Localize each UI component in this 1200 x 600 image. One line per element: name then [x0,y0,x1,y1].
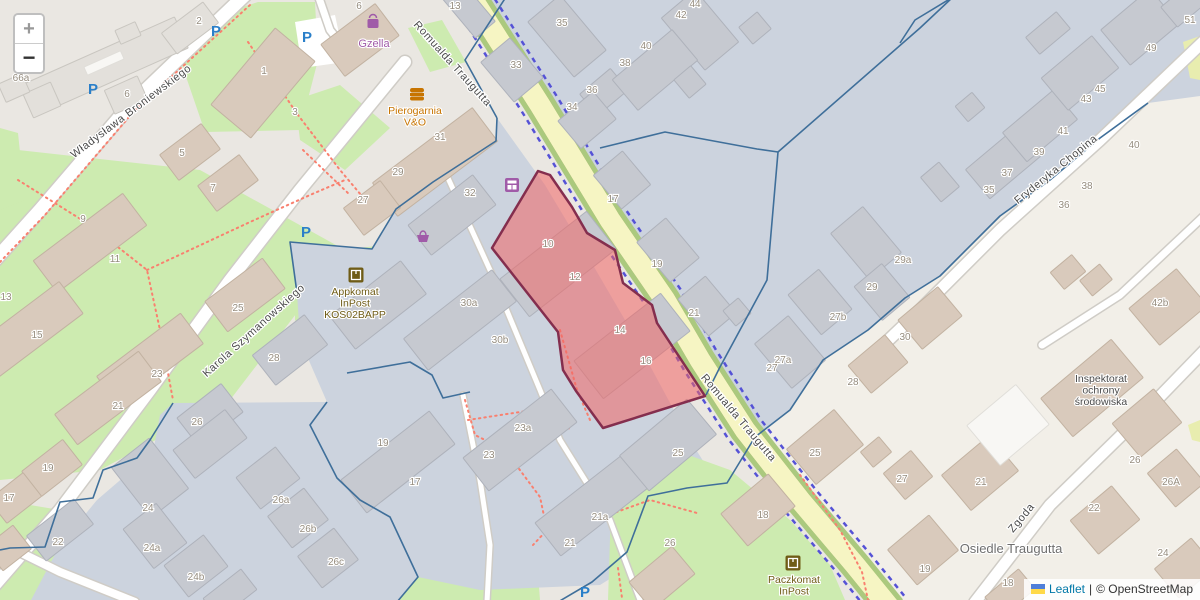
map-tiles: PPPPP266a6571391113152523212628613312927… [0,0,1200,600]
house-number: 40 [640,41,652,52]
fast-food-icon [410,88,424,101]
house-number: 11 [110,254,121,265]
house-number: 30 [899,332,911,343]
house-number: 24a [144,543,161,554]
house-number: 19 [651,259,663,270]
house-number: 26b [300,524,317,535]
house-number: 42b [1152,298,1169,309]
house-number: 17 [607,194,619,205]
house-number: 31 [434,132,446,143]
house-number: 21a [592,512,609,523]
parking-icon: P [301,224,311,241]
house-number: 2 [196,16,202,27]
house-number: 23 [483,450,495,461]
poi-label: Gzella [358,38,390,50]
house-number: 27 [766,363,778,374]
house-number: 19 [377,438,389,449]
ukraine-flag-icon [1031,584,1045,594]
house-number: 18 [1002,578,1014,589]
house-number: 36 [1058,200,1070,211]
house-number: 13 [0,292,12,303]
house-number: 6 [124,89,130,100]
house-number: 10 [542,239,554,250]
house-number: 38 [1081,181,1093,192]
house-number: 15 [31,330,43,341]
house-number: 51 [1184,15,1196,26]
house-number: 42 [675,10,687,21]
house-number: 5 [179,148,185,159]
house-number: 14 [614,325,626,336]
house-number: 21 [688,308,700,319]
parking-icon: P [302,29,312,46]
house-number: 19 [919,564,931,575]
attribution-bar: Leaflet|© OpenStreetMap [1024,579,1200,600]
house-number: 24 [1157,548,1169,559]
house-number: 21 [564,538,576,549]
house-number: 22 [52,537,64,548]
house-number: 29 [866,282,878,293]
house-number: 17 [409,477,421,488]
house-number: 38 [619,58,631,69]
house-number: 34 [566,102,578,113]
parking-icon: P [580,584,590,600]
house-number: 66a [13,73,30,84]
house-number: 1 [261,66,267,77]
house-number: 27 [896,474,908,485]
house-number: 26 [191,417,203,428]
house-number: 23a [515,423,532,434]
house-number: 26a [273,495,290,506]
house-number: 37 [1001,168,1013,179]
house-number: 45 [1094,84,1106,95]
house-number: 25 [672,448,684,459]
parking-icon: P [211,23,221,40]
house-number: 18 [757,510,769,521]
house-number: 9 [80,214,86,225]
house-number: 28 [268,353,280,364]
convenience-store-icon [505,178,519,192]
house-number: 24b [188,572,205,583]
house-number: 13 [449,1,461,12]
house-number: 6 [356,1,362,12]
house-number: 26 [1129,455,1141,466]
house-number: 7 [210,183,216,194]
house-number: 25 [809,448,821,459]
house-number: 35 [556,18,568,29]
house-number: 32 [464,188,476,199]
house-number: 44 [689,0,701,10]
house-number: 27 [357,195,369,206]
zoom-out-button[interactable]: − [15,44,43,72]
house-number: 26 [664,538,676,549]
house-number: 36 [586,85,598,96]
osm-link[interactable]: © OpenStreetMap [1096,582,1193,596]
map-canvas[interactable]: PPPPP266a6571391113152523212628613312927… [0,0,1200,600]
parcel-locker-icon [786,556,801,571]
house-number: 29 [392,167,404,178]
house-number: 39 [1033,147,1045,158]
house-number: 28 [847,377,859,388]
house-number: 12 [569,272,581,283]
house-number: 22 [1088,503,1100,514]
leaflet-link[interactable]: Leaflet [1049,582,1085,596]
poi-label: Inspektoratochronyśrodowiska [1075,373,1128,408]
parking-icon: P [88,81,98,98]
attribution-separator: | [1089,582,1092,596]
house-number: 41 [1057,126,1069,137]
house-number: 30b [492,335,509,346]
house-number: 26A [1162,477,1180,488]
house-number: 35 [983,185,995,196]
house-number: 33 [510,60,522,71]
house-number: 19 [42,463,54,474]
house-number: 49 [1145,43,1157,54]
house-number: 40 [1128,140,1140,151]
house-number: 3 [292,107,298,118]
house-number: 21 [975,477,987,488]
zoom-in-button[interactable]: + [15,15,43,44]
house-number: 27b [830,312,847,323]
house-number: 26c [328,557,344,568]
house-number: 23 [151,369,163,380]
poi-label: Osiedle Traugutta [960,541,1063,556]
house-number: 16 [640,356,652,367]
house-number: 24 [142,503,154,514]
house-number: 21 [112,401,124,412]
house-number: 29a [895,255,912,266]
house-number: 25 [232,303,244,314]
zoom-control: + − [13,13,45,74]
house-number: 30a [461,298,478,309]
house-number: 43 [1080,94,1092,105]
parcel-locker-icon [349,268,364,283]
house-number: 17 [3,493,15,504]
